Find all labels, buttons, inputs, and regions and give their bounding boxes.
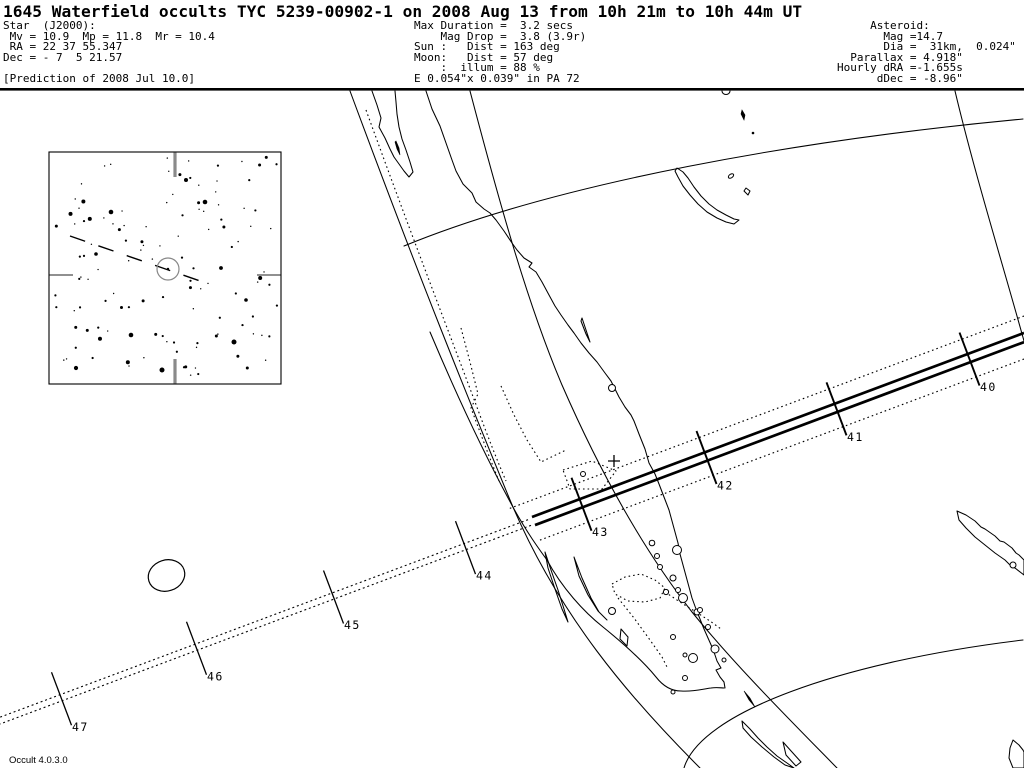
finder-chart-inset <box>49 152 281 384</box>
inset-star <box>219 266 223 270</box>
daylight-path-south <box>0 525 531 724</box>
inset-star <box>78 208 79 209</box>
inset-star <box>243 208 244 209</box>
inset-star <box>246 367 249 370</box>
inset-star <box>110 164 111 165</box>
inset-star <box>263 271 264 272</box>
inset-star <box>207 283 208 284</box>
inset-star <box>109 210 114 215</box>
path-tick-label-44: 44 <box>476 569 493 583</box>
latitude-arc-north <box>404 119 1023 246</box>
inset-star <box>55 306 57 308</box>
inset-star <box>79 306 81 308</box>
inset-star <box>275 163 277 165</box>
everglades-dotted-a <box>665 592 721 629</box>
inset-star <box>152 258 153 259</box>
inset-star <box>218 204 219 205</box>
inset-star <box>107 330 108 331</box>
sigma-limit-north <box>508 316 1024 509</box>
bahama-islet-c <box>741 110 745 120</box>
inset-star <box>118 228 121 231</box>
grid-lines <box>350 91 1024 768</box>
inset-star <box>270 228 271 229</box>
inset-star <box>181 214 183 216</box>
error-ellipse <box>144 555 189 596</box>
path-tick-label-43: 43 <box>592 525 609 539</box>
inset-star <box>258 276 262 280</box>
inset-star <box>219 317 221 319</box>
inset-star <box>250 226 251 227</box>
inset-star <box>189 286 192 289</box>
coastlines <box>372 91 1024 768</box>
florida-keys-chain <box>742 721 794 768</box>
inset-star <box>97 327 99 329</box>
inset-star <box>235 292 237 294</box>
inset-star <box>79 256 81 258</box>
event-data-block: Max Duration = 3.2 secs Mag Drop = 3.8 (… <box>414 21 586 85</box>
charlotte-harbor-sliver <box>574 557 607 620</box>
inset-star <box>91 244 92 245</box>
inset-star <box>168 171 169 172</box>
inset-star <box>192 267 194 269</box>
star-data-block: Star (J2000): Mv = 10.9 Mp = 11.8 Mr = 1… <box>3 21 215 85</box>
header-text-line: Dec = - 7 5 21.57 <box>3 53 215 64</box>
inset-star <box>112 223 113 224</box>
inset-star <box>81 183 82 184</box>
occult-prediction-window: 4041424344454647 <box>0 0 1024 768</box>
inset-star <box>167 157 168 158</box>
inset-star <box>97 269 98 270</box>
inset-star <box>222 226 225 229</box>
bahama-islet-d <box>752 132 755 135</box>
inset-star <box>203 211 204 212</box>
inset-star <box>166 341 167 342</box>
inset-star <box>81 200 85 204</box>
bahama-islet-b <box>744 188 750 195</box>
shadow-limit-north <box>532 333 1024 517</box>
inset-star <box>143 357 144 358</box>
inset-star <box>160 368 165 373</box>
marsh-dotted-quad <box>563 461 616 489</box>
inset-star <box>189 177 191 179</box>
inset-star <box>66 358 67 359</box>
map-top-border <box>0 88 1024 91</box>
daylight-path-north <box>0 520 528 718</box>
inset-star <box>129 333 134 338</box>
path-tick-46 <box>187 622 207 675</box>
inset-frame <box>49 152 281 384</box>
inset-star <box>276 304 278 306</box>
inset-star <box>140 249 141 250</box>
inset-star <box>241 324 243 326</box>
inset-star <box>128 365 129 366</box>
inset-star <box>208 229 209 230</box>
lagoon-islet <box>395 141 400 155</box>
inset-star <box>92 357 94 359</box>
bahama-islet-top <box>722 91 730 95</box>
inset-star <box>190 374 191 375</box>
inset-star <box>217 165 219 167</box>
inset-star <box>55 225 58 228</box>
inset-star <box>104 300 106 302</box>
inset-star <box>196 347 197 348</box>
inset-star <box>162 335 164 337</box>
inset-star <box>217 333 218 334</box>
software-version-label: Occult 4.0.3.0 <box>9 755 68 766</box>
inset-star <box>248 179 250 181</box>
inset-star <box>88 217 92 221</box>
bimini-sliver <box>744 691 755 707</box>
inset-star <box>183 366 185 368</box>
inset-star <box>75 198 76 199</box>
river-dotted-2 <box>501 386 566 462</box>
path-tick-47 <box>52 672 72 725</box>
inset-star <box>232 340 237 345</box>
header-text-line: [Prediction of 2008 Jul 10.0] <box>3 74 215 85</box>
path-tick-label-41: 41 <box>847 430 864 444</box>
inset-star <box>125 240 127 242</box>
inset-star <box>94 252 98 256</box>
asteroid-data-block: Asteroid: Mag =14.7 Dia = 31km, 0.024" P… <box>837 21 1016 85</box>
inset-star <box>145 226 146 227</box>
inset-star <box>195 367 196 368</box>
inset-star <box>87 279 88 280</box>
inset-star <box>159 245 160 246</box>
inset-star <box>172 194 173 195</box>
inset-star <box>237 241 238 242</box>
inset-star <box>103 217 104 218</box>
inset-star <box>143 245 144 246</box>
inset-star <box>178 173 181 176</box>
inset-star <box>203 200 208 205</box>
inset-star <box>197 373 199 375</box>
inset-star <box>220 218 222 220</box>
inset-star <box>83 255 85 257</box>
target-star-dot <box>167 268 169 270</box>
occultation-map: 4041424344454647 <box>0 0 1024 768</box>
inset-star <box>128 306 130 308</box>
inset-star <box>216 180 217 181</box>
inset-star <box>74 366 78 370</box>
inset-star <box>184 178 188 182</box>
limit-line-west <box>350 91 700 768</box>
city-circles <box>581 385 1017 695</box>
bahama-islet-a <box>728 173 735 179</box>
inset-star <box>258 163 261 166</box>
inset-star <box>215 191 216 192</box>
map-markers <box>144 385 1016 695</box>
inset-star <box>140 240 143 243</box>
header-text-line: dDec = -8.96" <box>837 74 1016 85</box>
page-title: 1645 Waterfield occults TYC 5239-00902-1… <box>3 2 802 21</box>
inset-star <box>268 335 270 337</box>
path-tick-label-45: 45 <box>344 618 361 632</box>
lake-okeechobee <box>612 574 665 602</box>
inset-star <box>162 296 164 298</box>
path-tick-label-47: 47 <box>72 720 89 734</box>
inset-star <box>80 276 81 277</box>
inset-star <box>241 161 242 162</box>
inset-star <box>123 225 124 226</box>
inset-star <box>120 306 123 309</box>
inset-star <box>231 246 233 248</box>
twilight-dotted-line <box>366 110 506 481</box>
inset-star <box>75 347 77 349</box>
inset-star <box>74 326 77 329</box>
florida-west-coast-lower <box>547 560 724 691</box>
inset-star <box>154 333 157 336</box>
inset-star <box>173 341 175 343</box>
path-tick-label-46: 46 <box>207 669 224 683</box>
inset-star <box>265 360 266 361</box>
inset-star <box>265 156 268 159</box>
inset-star <box>126 360 130 364</box>
inset-star <box>198 209 199 210</box>
latitude-arc-south <box>684 640 1023 768</box>
inset-star <box>78 278 80 280</box>
inset-star <box>128 260 129 261</box>
inset-star <box>86 329 89 332</box>
inset-star <box>83 220 85 222</box>
inset-star <box>178 235 179 236</box>
inset-star <box>196 342 198 344</box>
inset-star <box>197 201 200 204</box>
inset-star <box>188 160 189 161</box>
path-tick-label-40: 40 <box>980 380 997 394</box>
inset-star <box>215 334 218 337</box>
inset-star <box>121 210 122 211</box>
inset-star <box>69 212 73 216</box>
shadow-limit-south <box>535 342 1024 525</box>
coastal-hook-islet <box>620 629 628 646</box>
header-text-line: E 0.054"x 0.039" in PA 72 <box>414 74 586 85</box>
limit-line-east <box>955 91 1024 341</box>
inset-star <box>98 337 102 341</box>
inset-star <box>113 293 114 294</box>
inset-star <box>74 310 75 311</box>
inset-star <box>257 281 258 282</box>
corner-island <box>1009 740 1024 768</box>
inset-star <box>63 359 64 360</box>
limit-line-mid <box>470 91 837 768</box>
inset-star <box>268 284 270 286</box>
inset-star <box>104 165 105 166</box>
inset-star <box>253 333 254 334</box>
inset-star <box>198 185 199 186</box>
path-tick-label-42: 42 <box>717 478 734 492</box>
inset-star <box>176 351 178 353</box>
cross-marker <box>608 455 620 467</box>
inset-star <box>142 299 145 302</box>
inset-star <box>261 335 262 336</box>
inset-star <box>189 280 191 282</box>
barrier-island-sliver <box>581 318 590 342</box>
inset-star <box>193 308 194 309</box>
lagoon-coast <box>372 91 413 177</box>
inset-star <box>181 257 183 259</box>
inset-star <box>254 209 256 211</box>
eleuthera-island <box>675 168 739 224</box>
inset-star <box>236 355 239 358</box>
inset-star <box>54 294 56 296</box>
inset-star <box>252 315 254 317</box>
inset-star <box>74 223 75 224</box>
inset-star <box>200 288 201 289</box>
inset-star <box>244 298 248 302</box>
inset-star <box>166 202 167 203</box>
